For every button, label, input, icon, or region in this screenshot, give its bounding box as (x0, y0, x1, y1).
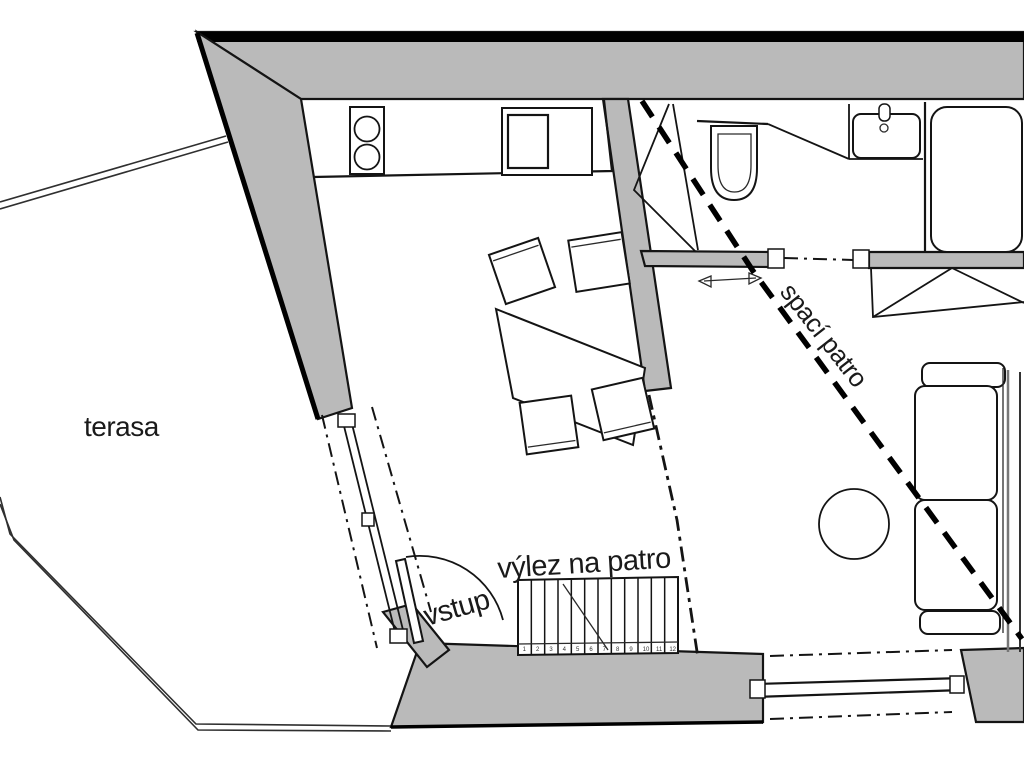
svg-text:11: 11 (656, 647, 663, 653)
terrace-outline (0, 136, 391, 731)
floor-plan-drawing: 123456789101112 terasa vstup výlez na pa… (0, 0, 1024, 768)
stairs-ladder: 123456789101112 (518, 577, 678, 655)
toilet-icon (697, 121, 768, 200)
kitchen-sink-icon (502, 108, 592, 175)
top-wall (197, 32, 1024, 99)
terrace-label: terasa (84, 411, 160, 442)
chair (520, 396, 579, 455)
bathroom-wall-right (869, 252, 1024, 268)
floor-plan: 123456789101112 terasa vstup výlez na pa… (0, 0, 1024, 768)
sliding-door (784, 258, 853, 260)
bottom-wall (391, 643, 763, 727)
chair (568, 232, 629, 292)
wardrobe-icon (871, 268, 1024, 317)
corner-wall (961, 648, 1024, 722)
washbasin-icon (853, 104, 920, 158)
chair (592, 378, 654, 440)
entrance-label: vstup (420, 584, 493, 633)
sleeping-loft-label: spací patro (774, 277, 873, 393)
sliding-door-arrow-icon (699, 273, 761, 287)
svg-text:12: 12 (669, 647, 676, 653)
door-jamb (768, 249, 784, 268)
kitchen (313, 100, 612, 177)
stove-icon (350, 107, 384, 174)
window (750, 650, 964, 719)
round-table (819, 489, 889, 559)
bathtub-icon (931, 107, 1022, 252)
door-jamb (853, 250, 869, 268)
chair (489, 238, 555, 304)
svg-text:10: 10 (643, 647, 650, 653)
